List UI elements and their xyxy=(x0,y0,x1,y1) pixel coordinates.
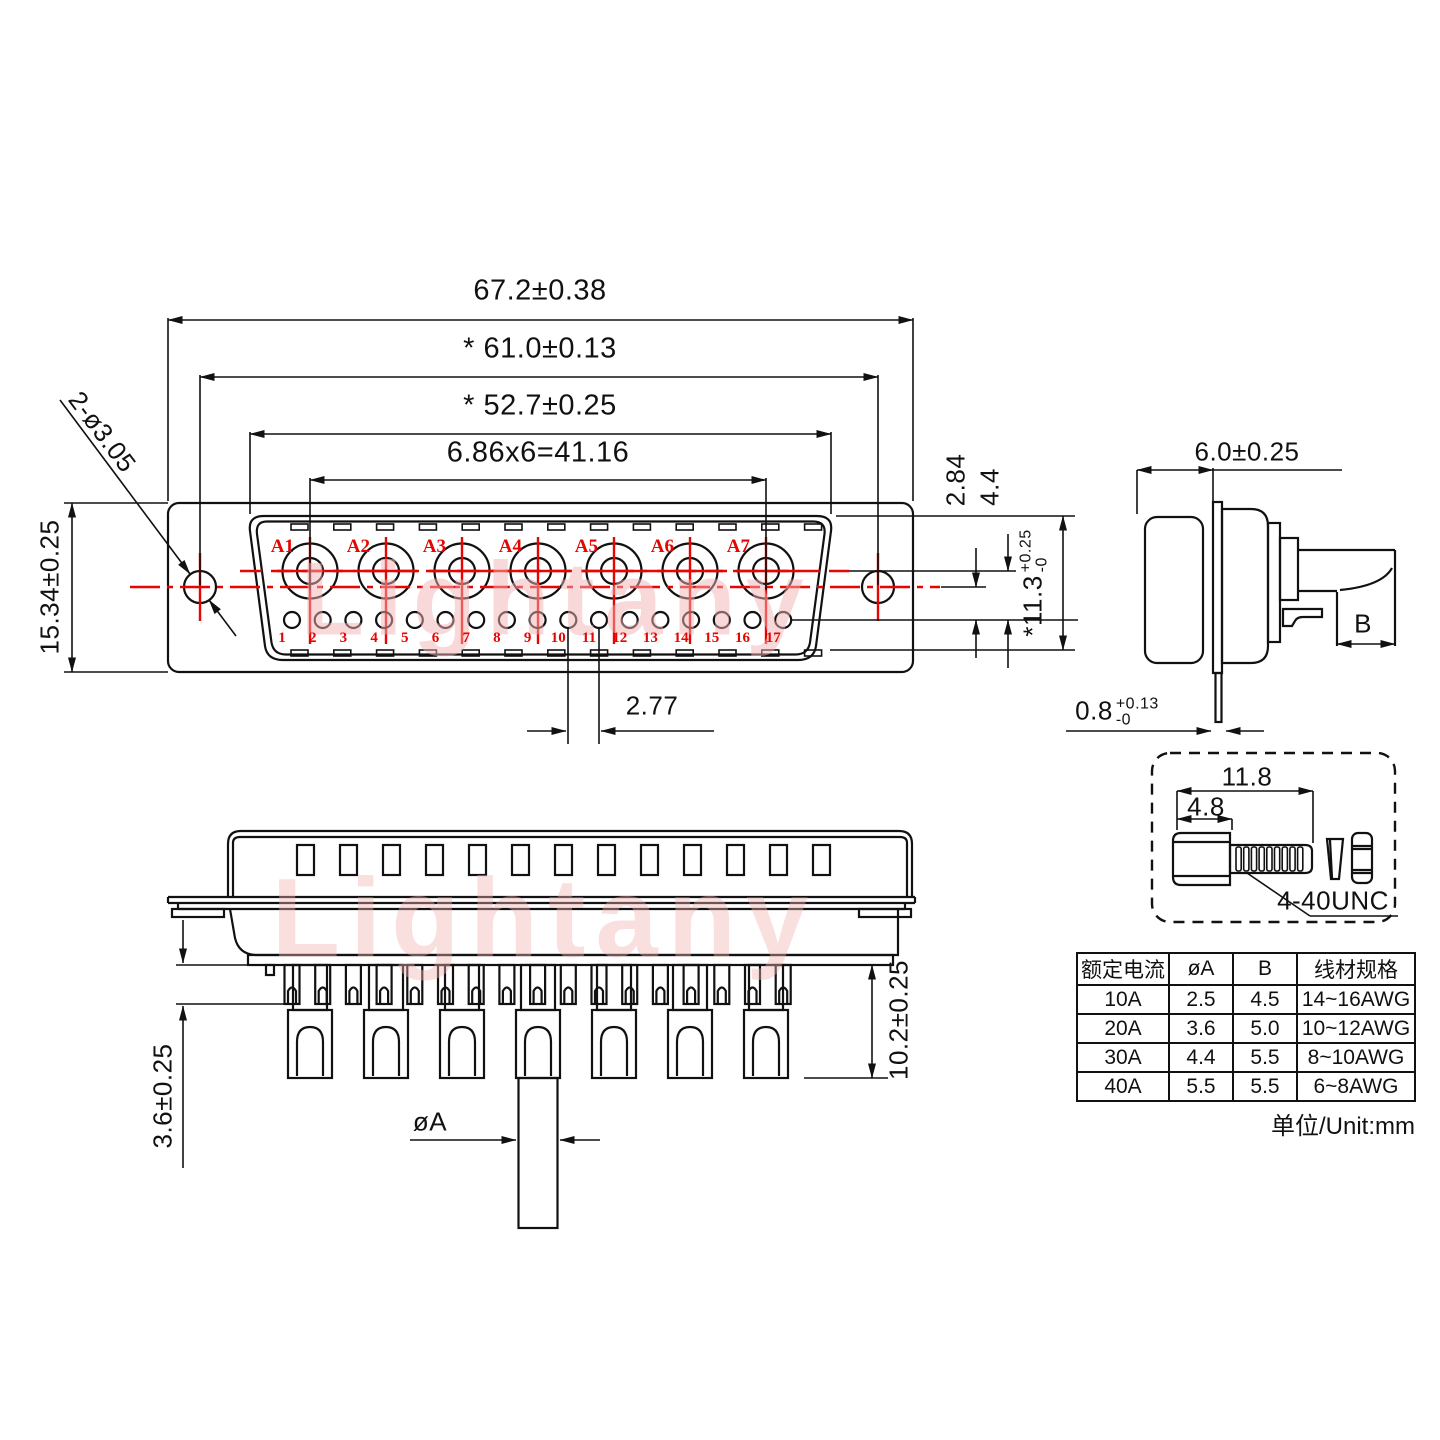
tolerance-upper: +0.13 xyxy=(1116,696,1159,712)
pin-label: 3 xyxy=(330,630,356,647)
spec-table-header-cell: B xyxy=(1233,953,1297,985)
connector-drawing-canvas: Lightany Lightany 67.2±0.38 * 61.0±0.13 … xyxy=(0,0,1440,1440)
spec-table-cell: 6~8AWG xyxy=(1297,1072,1415,1101)
tolerance-stack: +0.25-0 xyxy=(1018,529,1051,572)
spec-table-cell: 5.5 xyxy=(1233,1043,1297,1072)
pin-label: 17 xyxy=(760,630,786,647)
spec-table-cell: 20A xyxy=(1077,1014,1169,1043)
spec-table-cell: 5.0 xyxy=(1233,1014,1297,1043)
pin-label: 10 xyxy=(545,630,571,647)
watermark-bottom: Lightany xyxy=(272,854,819,983)
spec-table-cell: 2.5 xyxy=(1169,985,1233,1014)
pin-label: 12 xyxy=(607,630,633,647)
tolerance-stack: +0.13-0 xyxy=(1116,696,1159,729)
spec-table-row: 40A5.55.56~8AWG xyxy=(1077,1072,1415,1101)
dim-overall-width: 67.2±0.38 xyxy=(473,275,606,308)
dim-pin-diameter: øA xyxy=(413,1107,447,1138)
spec-table-cell: 14~16AWG xyxy=(1297,985,1415,1014)
tolerance-lower: -0 xyxy=(1034,529,1050,572)
dim-side-depth: 6.0±0.25 xyxy=(1194,437,1299,468)
dim-screw-head: 4.8 xyxy=(1187,792,1225,823)
pin-label: 15 xyxy=(699,630,725,647)
contact-label: A5 xyxy=(552,536,598,558)
dim-value: 11.3 xyxy=(1017,575,1047,626)
spec-table-cell: 5.5 xyxy=(1233,1072,1297,1101)
dim-shell-width: * 52.7±0.25 xyxy=(463,390,617,423)
spec-table-cell: 10~12AWG xyxy=(1297,1014,1415,1043)
pin-label: 16 xyxy=(730,630,756,647)
pin-label: 8 xyxy=(484,630,510,647)
spec-table-header-cell: øA xyxy=(1169,953,1233,985)
spec-table-header-cell: 额定电流 xyxy=(1077,953,1169,985)
contact-label: A2 xyxy=(324,536,370,558)
spec-table-header-row: 额定电流øAB线材规格 xyxy=(1077,953,1415,985)
spec-table-header-cell: 线材规格 xyxy=(1297,953,1415,985)
spec-table-row: 30A4.45.58~10AWG xyxy=(1077,1043,1415,1072)
contact-label: A7 xyxy=(704,536,750,558)
dim-star: * xyxy=(1017,626,1047,637)
spec-table-cell: 30A xyxy=(1077,1043,1169,1072)
spec-table-cell: 8~10AWG xyxy=(1297,1043,1415,1072)
spec-table-cell: 4.4 xyxy=(1169,1043,1233,1072)
dim-flange-thickness: 0.8+0.13-0 xyxy=(1075,695,1159,728)
spec-table-cell: 3.6 xyxy=(1169,1014,1233,1043)
dim-row-spacing: 4.4 xyxy=(975,468,1006,506)
pin-label: 11 xyxy=(576,630,602,647)
dim-shell-height: *11.3+0.25-0 xyxy=(1017,529,1050,636)
side-view xyxy=(1066,468,1395,731)
dim-hole-span: * 61.0±0.13 xyxy=(463,333,617,366)
pin-label: 5 xyxy=(392,630,418,647)
tolerance-upper: +0.25 xyxy=(1018,529,1034,572)
pin-label: 14 xyxy=(668,630,694,647)
dim-wire-b: B xyxy=(1354,609,1372,640)
pin-label: 7 xyxy=(453,630,479,647)
dim-flange-height: 15.34±0.25 xyxy=(35,520,66,655)
dim-cup-depth: 3.6±0.25 xyxy=(148,1043,179,1148)
screw-threads xyxy=(1236,847,1303,871)
drawing-linework xyxy=(0,0,1440,1440)
dim-row-offset: 2.84 xyxy=(941,454,972,507)
spec-table: 额定电流øAB线材规格 10A2.54.514~16AWG20A3.65.010… xyxy=(1076,952,1416,1102)
spec-table-cell: 40A xyxy=(1077,1072,1169,1101)
dim-pin-pitch: 2.77 xyxy=(626,691,679,722)
spec-table-cell: 4.5 xyxy=(1233,985,1297,1014)
dim-contact-pitch-total: 6.86x6=41.16 xyxy=(447,437,630,470)
spec-table-row: 10A2.54.514~16AWG xyxy=(1077,985,1415,1014)
contact-label: A6 xyxy=(628,536,674,558)
unit-label: 单位/Unit:mm xyxy=(1180,1106,1415,1141)
pin-label: 9 xyxy=(515,630,541,647)
front-view xyxy=(60,318,1078,744)
spec-table-cell: 5.5 xyxy=(1169,1072,1233,1101)
contact-label: A1 xyxy=(248,536,294,558)
spec-table-cell: 10A xyxy=(1077,985,1169,1014)
pin-label: 4 xyxy=(361,630,387,647)
dim-tail-length: 10.2±0.25 xyxy=(884,960,915,1080)
pin-label: 2 xyxy=(300,630,326,647)
spec-table-row: 20A3.65.010~12AWG xyxy=(1077,1014,1415,1043)
contact-label: A3 xyxy=(400,536,446,558)
tolerance-lower: -0 xyxy=(1116,712,1159,728)
dim-value: 0.8 xyxy=(1075,695,1113,725)
pin-label: 6 xyxy=(423,630,449,647)
thread-spec-label: 4-40UNC xyxy=(1277,886,1389,917)
contact-label: A4 xyxy=(476,536,522,558)
pin-label: 13 xyxy=(637,630,663,647)
dim-screw-total: 11.8 xyxy=(1222,762,1273,793)
pin-label: 1 xyxy=(269,630,295,647)
